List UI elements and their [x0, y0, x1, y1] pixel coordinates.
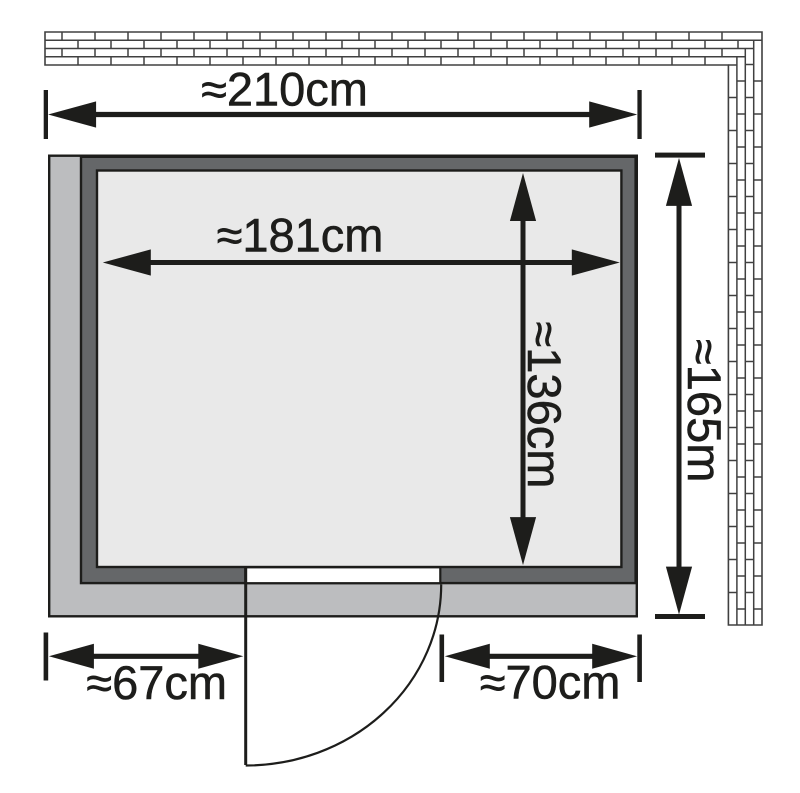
svg-text:≈181cm: ≈181cm — [217, 209, 384, 262]
svg-text:≈67cm: ≈67cm — [86, 656, 227, 709]
svg-text:≈136cm: ≈136cm — [518, 322, 571, 489]
svg-text:≈70cm: ≈70cm — [480, 656, 621, 709]
svg-text:≈165m: ≈165m — [678, 339, 731, 482]
svg-text:≈210cm: ≈210cm — [201, 63, 368, 116]
